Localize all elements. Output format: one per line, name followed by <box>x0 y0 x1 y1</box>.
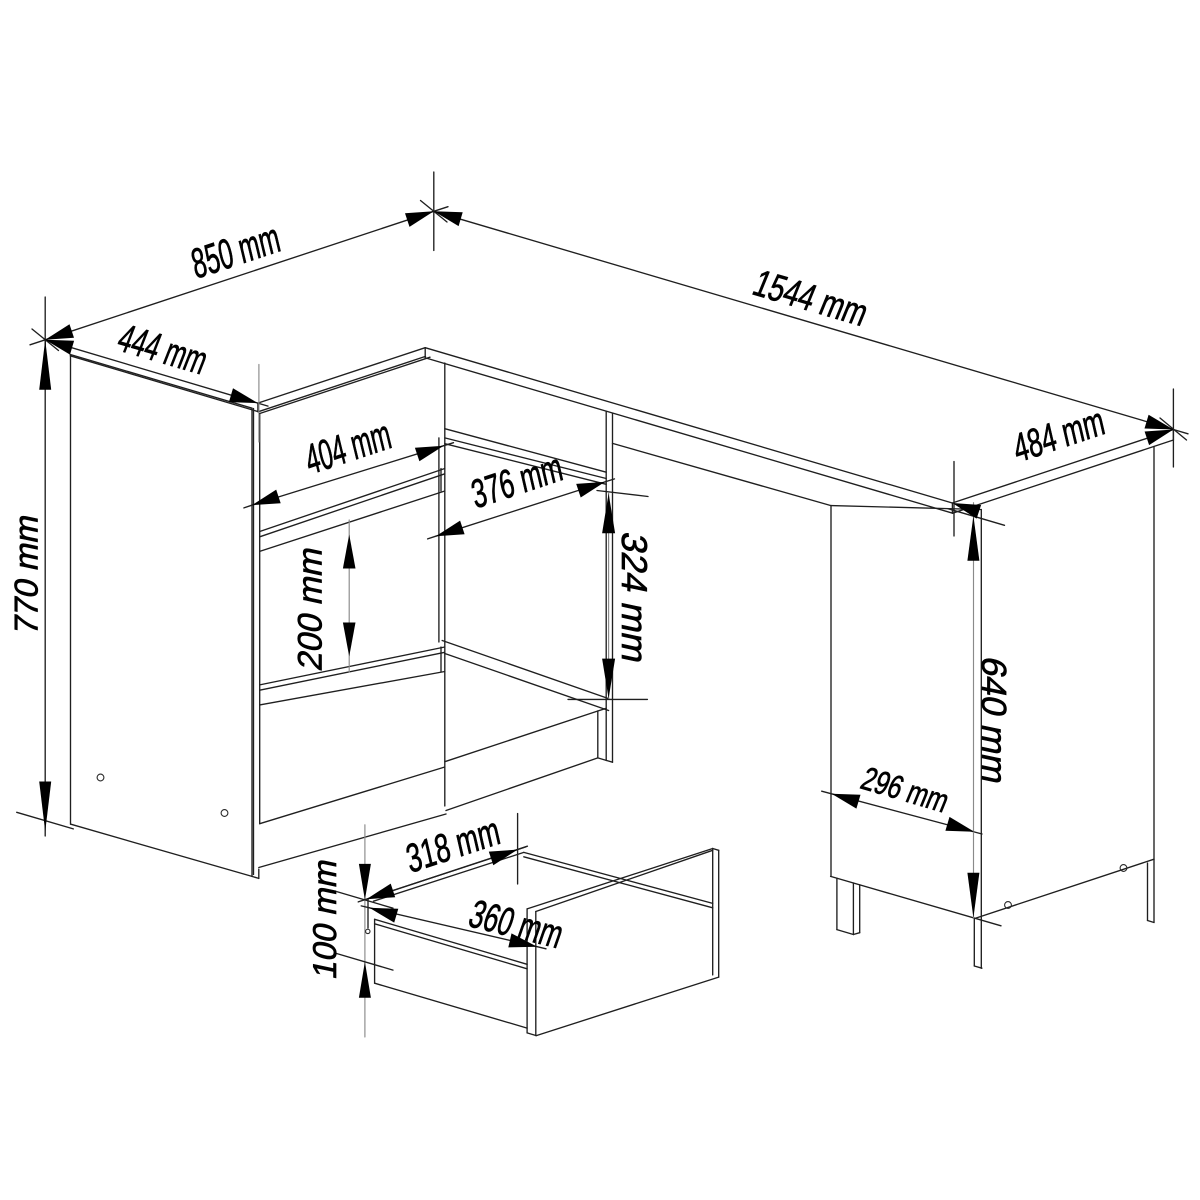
svg-text:200 mm: 200 mm <box>292 543 330 674</box>
svg-text:100 mm: 100 mm <box>307 855 344 982</box>
svg-text:324 mm: 324 mm <box>614 529 655 668</box>
svg-text:640 mm: 640 mm <box>974 653 1013 788</box>
svg-text:770 mm: 770 mm <box>9 511 46 638</box>
